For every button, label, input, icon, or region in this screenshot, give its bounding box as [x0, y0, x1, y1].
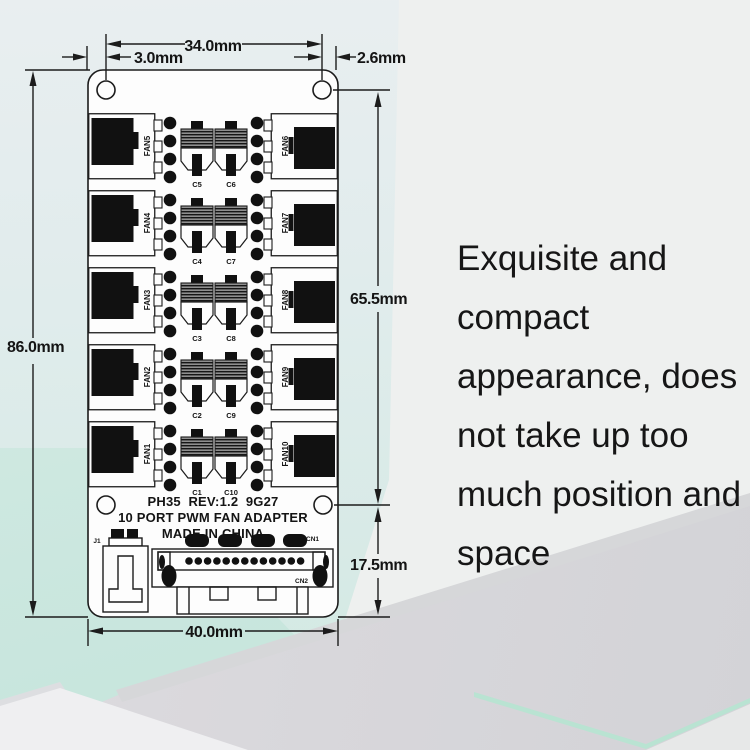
marketing-line: much position and — [457, 465, 750, 524]
cap-label: C4 — [192, 257, 202, 266]
fan-label: FAN9 — [281, 366, 290, 387]
product-image: FAN5 FAN6 FAN4 FAN7 FAN3 FAN8 FAN2 FAN9 … — [0, 0, 750, 750]
silkscreen-title: 10 PORT PWM FAN ADAPTER — [118, 510, 308, 525]
dim-board-width-label: 40.0mm — [185, 624, 242, 641]
cap-label: C2 — [192, 411, 202, 420]
mounting-hole-top-left — [97, 81, 115, 99]
fan-label: FAN10 — [281, 441, 290, 466]
cap-label: C6 — [226, 180, 236, 189]
cap-label: C9 — [226, 411, 236, 420]
marketing-line: not take up too — [457, 406, 750, 465]
fan-label: FAN6 — [281, 135, 290, 156]
cap-label: C8 — [226, 334, 236, 343]
cap-label: C3 — [192, 334, 202, 343]
dim-board-height-label: 86.0mm — [7, 339, 64, 356]
dim-right-hole-offset-label: 2.6mm — [357, 50, 406, 67]
marketing-line: space — [457, 524, 750, 583]
silkscreen-origin: MADE IN CHINA — [162, 526, 265, 541]
cn2-label: CN2 — [295, 578, 308, 585]
cap-label: C7 — [226, 257, 236, 266]
mounting-hole-bottom-right — [314, 496, 332, 514]
cap-label: C5 — [192, 180, 202, 189]
dim-hole-span-label: 65.5mm — [350, 291, 407, 308]
fan-label: FAN2 — [143, 366, 152, 387]
silkscreen-model: PH35 REV:1.2 9G27 — [148, 494, 279, 509]
fan-label: FAN1 — [143, 443, 152, 464]
dim-left-hole-offset-label: 3.0mm — [134, 50, 183, 67]
fan-label: FAN4 — [143, 212, 152, 233]
fan-label: FAN8 — [281, 289, 290, 310]
marketing-line: Exquisite and — [457, 229, 750, 288]
marketing-line: appearance, does — [457, 347, 750, 406]
marketing-text: Exquisite and compact appearance, does n… — [457, 229, 750, 583]
mounting-hole-top-right — [313, 81, 331, 99]
fan-label: FAN3 — [143, 289, 152, 310]
fan-label: FAN5 — [143, 135, 152, 156]
dim-top-width-label: 34.0mm — [184, 38, 241, 55]
cn1-label: CN1 — [306, 536, 319, 543]
fan-label: FAN7 — [281, 212, 290, 233]
dim-bottom-section-label: 17.5mm — [350, 557, 407, 574]
j1-connector — [103, 529, 148, 612]
j1-label: J1 — [93, 538, 101, 545]
marketing-line: compact — [457, 288, 750, 347]
mounting-hole-bottom-left — [97, 496, 115, 514]
